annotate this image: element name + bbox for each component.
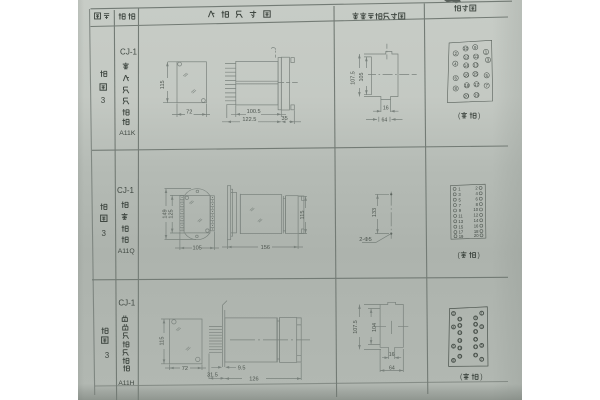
svg-text:104: 104 xyxy=(372,323,378,332)
svg-text:2-Φ5: 2-Φ5 xyxy=(359,237,372,243)
svg-text:): ) xyxy=(478,252,480,259)
svg-text:156: 156 xyxy=(261,245,270,251)
svg-text:16: 16 xyxy=(464,72,469,77)
svg-text:3: 3 xyxy=(101,229,106,238)
svg-text:13: 13 xyxy=(458,219,463,224)
svg-text:5: 5 xyxy=(481,344,483,348)
svg-text:9.5: 9.5 xyxy=(238,365,246,371)
svg-text:7: 7 xyxy=(481,358,483,362)
svg-text:17: 17 xyxy=(474,345,478,349)
svg-text:19: 19 xyxy=(459,234,464,239)
svg-text:107.5: 107.5 xyxy=(353,320,359,334)
svg-text:A11Q: A11Q xyxy=(118,248,135,255)
svg-text:3: 3 xyxy=(481,325,483,329)
svg-text:): ) xyxy=(478,113,480,120)
svg-text:20: 20 xyxy=(458,355,462,359)
svg-text:14: 14 xyxy=(474,218,479,223)
svg-text:19: 19 xyxy=(474,353,478,357)
svg-text:2: 2 xyxy=(453,312,455,316)
svg-text:12: 12 xyxy=(458,324,462,328)
svg-text:35: 35 xyxy=(281,116,287,122)
svg-text:CJ-1: CJ-1 xyxy=(117,186,134,195)
svg-text:15: 15 xyxy=(473,72,478,77)
svg-text:6: 6 xyxy=(453,345,455,349)
svg-text:CJ-1: CJ-1 xyxy=(118,299,135,308)
svg-text:14: 14 xyxy=(464,63,469,68)
svg-text:19: 19 xyxy=(474,93,479,98)
svg-text:64: 64 xyxy=(382,117,388,123)
svg-text:100.5: 100.5 xyxy=(247,109,261,115)
svg-text:72: 72 xyxy=(182,366,188,372)
svg-text:12: 12 xyxy=(464,55,469,60)
svg-text:16: 16 xyxy=(458,339,462,343)
svg-text:13: 13 xyxy=(474,330,478,334)
svg-text:10: 10 xyxy=(463,46,468,51)
svg-text:10: 10 xyxy=(458,317,462,321)
svg-text:1: 1 xyxy=(481,312,483,316)
svg-text:115: 115 xyxy=(300,211,306,220)
svg-text:11: 11 xyxy=(474,323,478,327)
svg-text:133: 133 xyxy=(372,208,378,217)
svg-text:3: 3 xyxy=(105,351,110,360)
svg-text:11: 11 xyxy=(458,214,463,219)
svg-text:18: 18 xyxy=(464,83,469,88)
svg-text:9: 9 xyxy=(475,316,477,320)
svg-text:107.5: 107.5 xyxy=(351,71,357,85)
svg-text:A11H: A11H xyxy=(118,380,134,387)
svg-text:): ) xyxy=(480,374,482,381)
svg-text:3: 3 xyxy=(101,96,106,105)
svg-text:105: 105 xyxy=(193,246,202,252)
svg-text:14: 14 xyxy=(458,331,462,335)
svg-text:149: 149 xyxy=(162,209,168,218)
svg-text:31.5: 31.5 xyxy=(207,372,218,378)
svg-text:13: 13 xyxy=(473,63,478,68)
svg-text:4: 4 xyxy=(453,325,455,329)
svg-text:17: 17 xyxy=(474,82,479,87)
svg-text:12: 12 xyxy=(474,213,479,218)
svg-text:11: 11 xyxy=(474,54,479,59)
svg-text:126: 126 xyxy=(249,376,258,382)
svg-text:10: 10 xyxy=(473,207,478,212)
svg-text:A11K: A11K xyxy=(119,130,136,137)
svg-text:20: 20 xyxy=(474,233,479,238)
svg-text:64: 64 xyxy=(389,365,395,371)
svg-text:CJ-1: CJ-1 xyxy=(120,47,137,56)
svg-text:18: 18 xyxy=(458,346,462,350)
svg-text:125: 125 xyxy=(169,209,175,218)
svg-text:20: 20 xyxy=(464,94,469,99)
svg-text:8: 8 xyxy=(453,359,455,363)
svg-text:16: 16 xyxy=(474,223,479,228)
svg-text:16: 16 xyxy=(383,105,389,111)
svg-text:15: 15 xyxy=(474,338,478,342)
svg-text:122.5: 122.5 xyxy=(242,117,256,123)
svg-text:105: 105 xyxy=(359,73,365,82)
svg-text:16: 16 xyxy=(389,352,395,358)
svg-text:115: 115 xyxy=(160,80,166,89)
svg-text:115: 115 xyxy=(160,337,166,346)
svg-text:72: 72 xyxy=(186,110,192,116)
